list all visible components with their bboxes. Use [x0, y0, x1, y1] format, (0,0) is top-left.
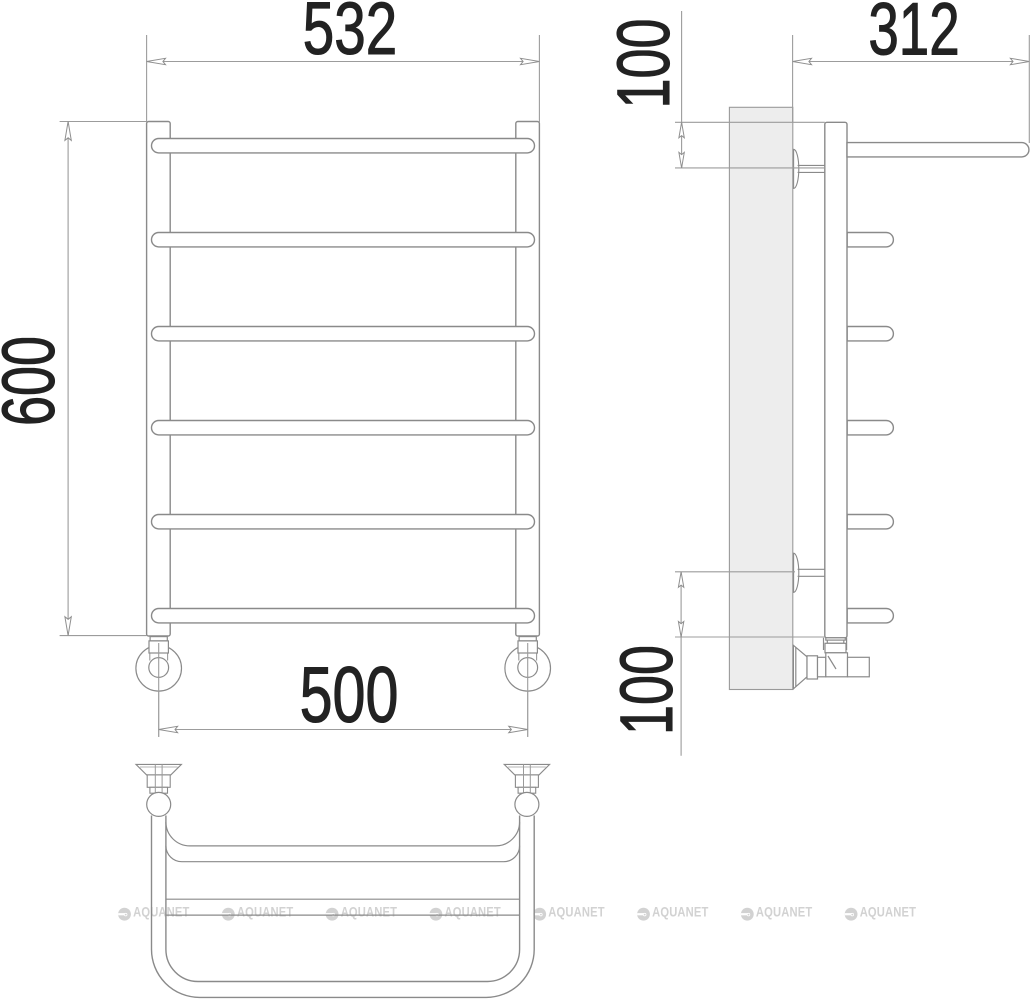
svg-text:AQUANET: AQUANET	[341, 905, 397, 920]
svg-text:532: 532	[303, 0, 397, 70]
svg-text:AQUANET: AQUANET	[860, 905, 916, 920]
svg-text:100: 100	[602, 18, 685, 108]
svg-text:AQUANET: AQUANET	[133, 905, 189, 920]
svg-text:AQUANET: AQUANET	[237, 905, 293, 920]
svg-text:500: 500	[300, 650, 399, 738]
svg-text:312: 312	[868, 0, 959, 70]
svg-text:AQUANET: AQUANET	[652, 905, 708, 920]
svg-text:100: 100	[605, 645, 688, 735]
svg-text:AQUANET: AQUANET	[445, 905, 501, 920]
svg-text:600: 600	[0, 336, 70, 426]
svg-text:AQUANET: AQUANET	[756, 905, 812, 920]
svg-text:AQUANET: AQUANET	[548, 905, 604, 920]
